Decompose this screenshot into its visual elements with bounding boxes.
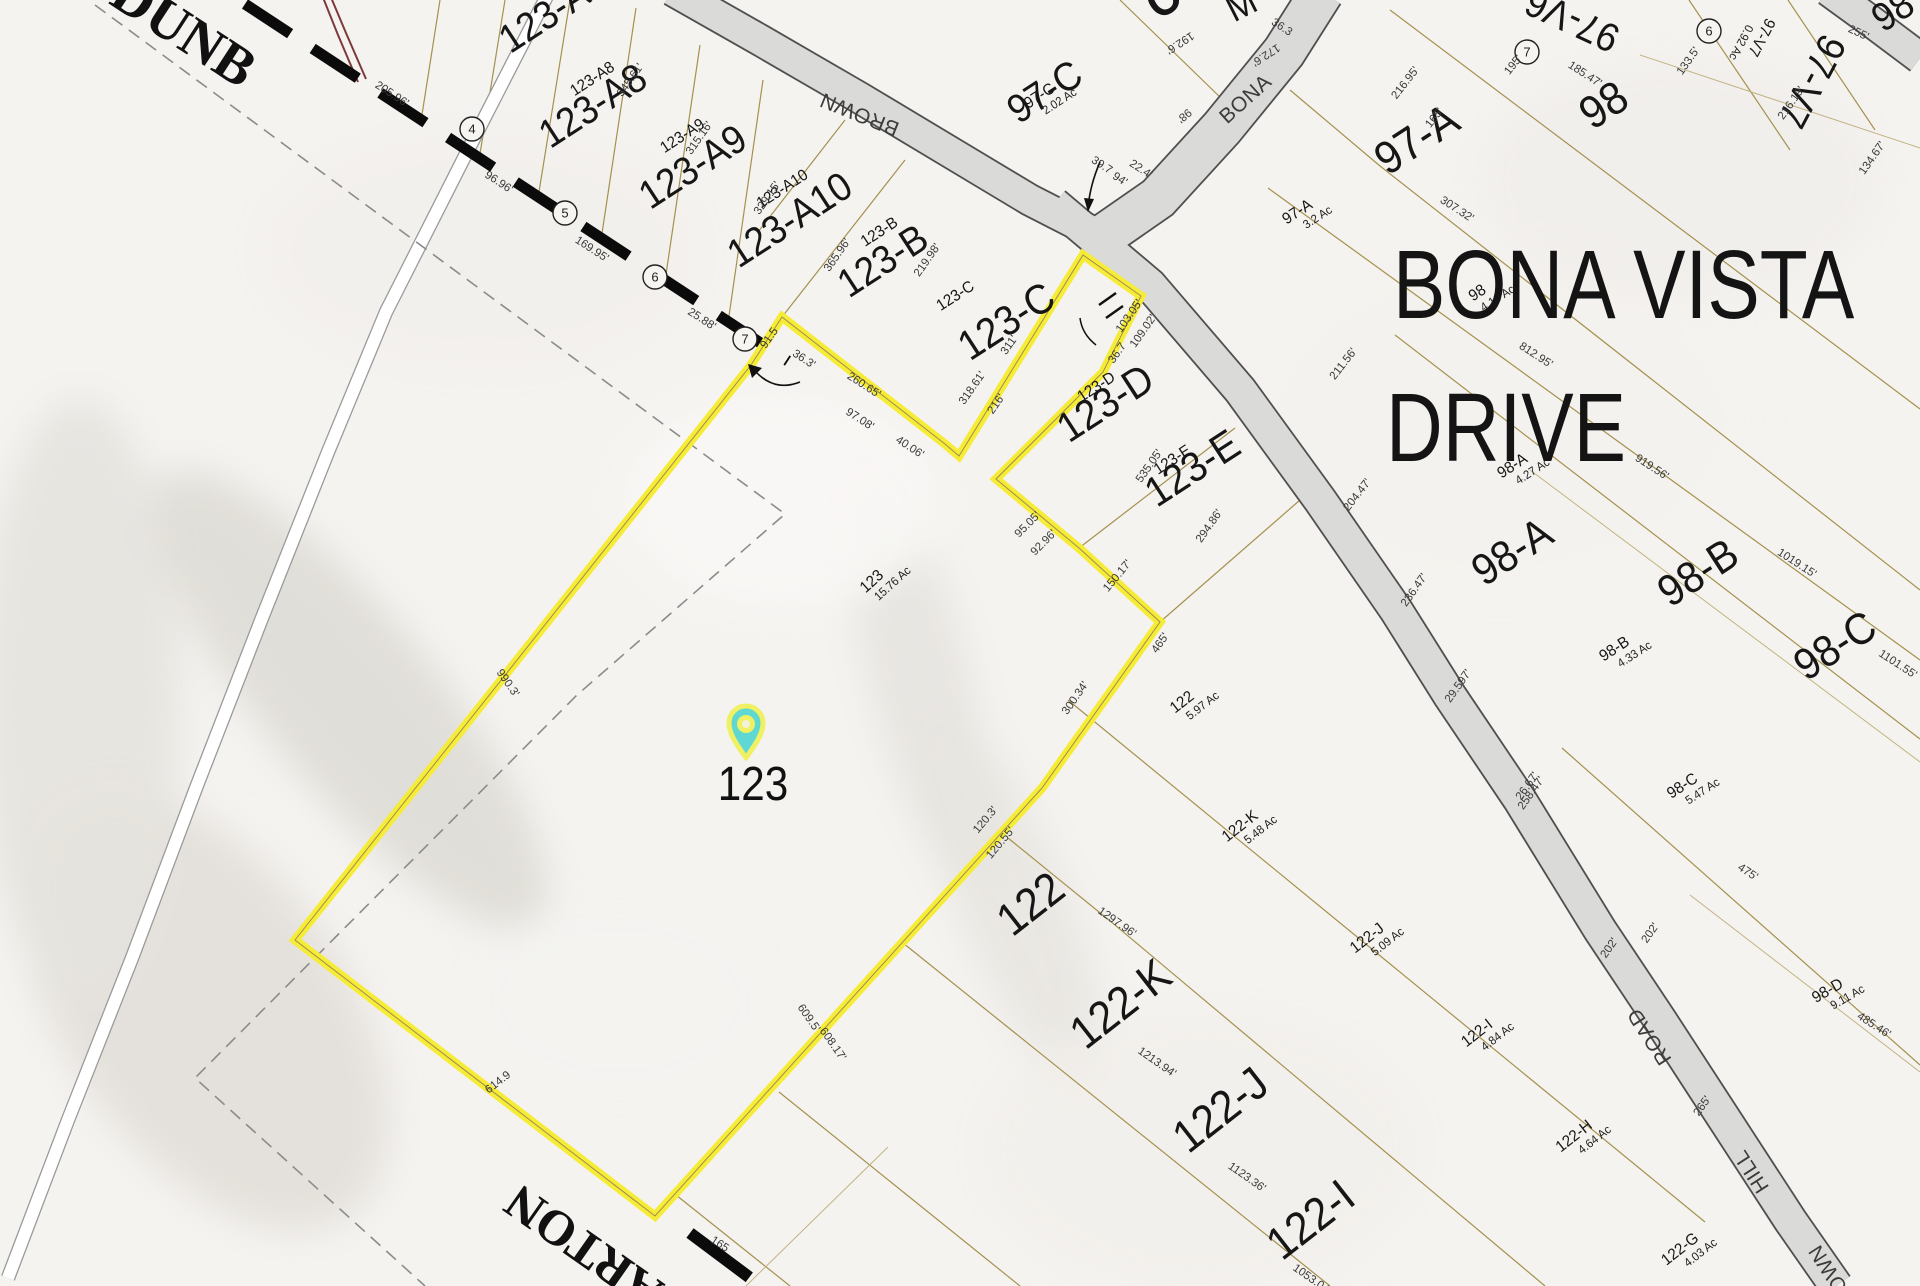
svg-text:6: 6: [651, 270, 658, 285]
svg-text:123: 123: [718, 756, 788, 810]
svg-text:BONA VISTA: BONA VISTA: [1393, 230, 1854, 339]
svg-text:5: 5: [561, 206, 568, 221]
svg-text:7: 7: [1523, 45, 1530, 60]
svg-text:6: 6: [1705, 24, 1712, 39]
svg-text:DRIVE: DRIVE: [1386, 373, 1626, 482]
svg-text:7: 7: [741, 332, 748, 347]
svg-text:4: 4: [468, 122, 475, 137]
